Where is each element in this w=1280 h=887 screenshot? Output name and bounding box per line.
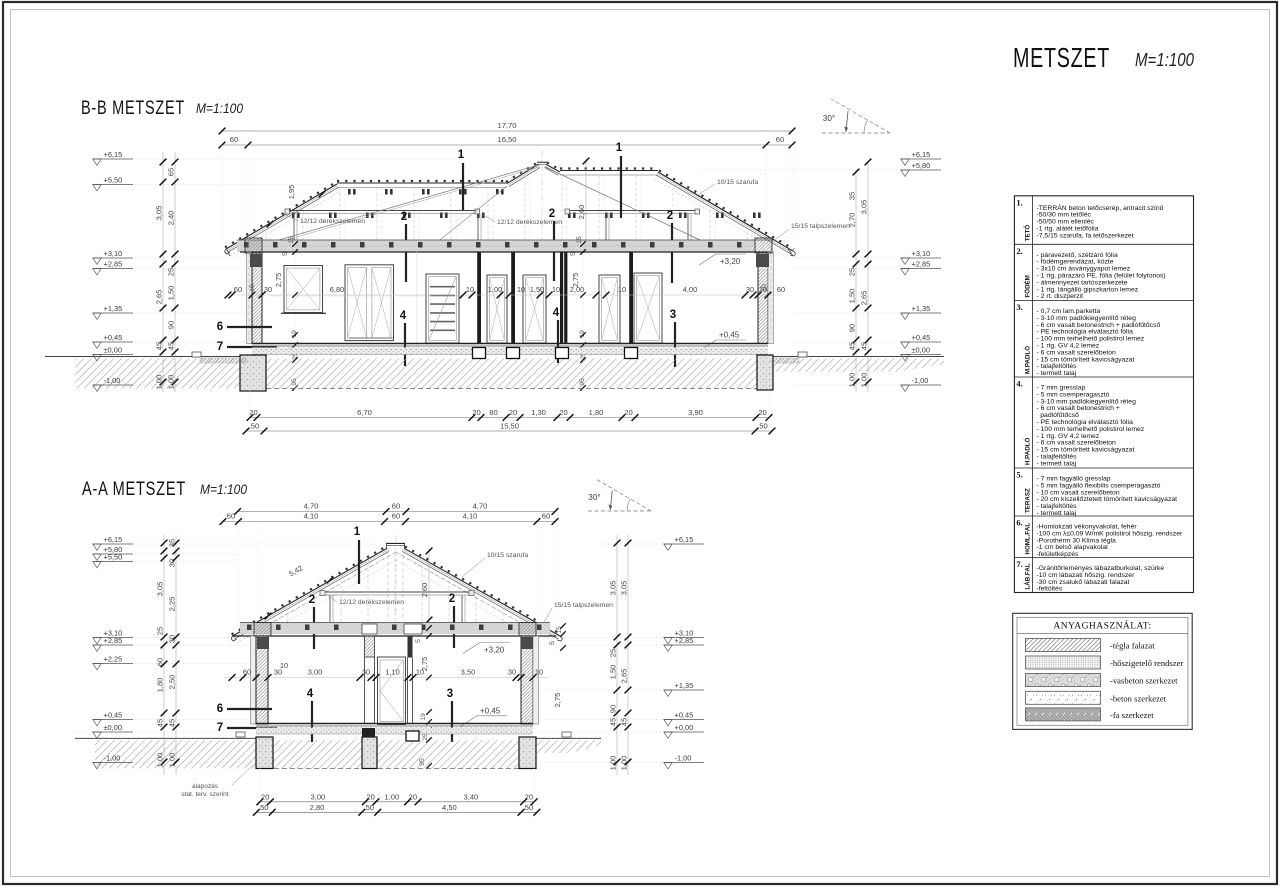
svg-text:+3,10: +3,10: [912, 249, 931, 258]
svg-text:30: 30: [168, 559, 177, 567]
svg-text:1: 1: [616, 142, 623, 154]
svg-text:60: 60: [230, 135, 238, 144]
svg-text:20: 20: [525, 792, 533, 801]
svg-text:25: 25: [848, 268, 857, 276]
svg-text:7.: 7.: [1016, 559, 1022, 569]
svg-text:6: 6: [217, 703, 223, 715]
svg-text:3,05: 3,05: [860, 200, 869, 215]
svg-text:3,05: 3,05: [609, 581, 618, 596]
svg-text:-1,00: -1,00: [104, 753, 121, 762]
svg-text:- 2 rt. diszperzit: - 2 rt. diszperzit: [1037, 293, 1084, 300]
svg-text:2: 2: [401, 211, 407, 223]
svg-text:10: 10: [535, 668, 543, 677]
svg-text:1,00: 1,00: [860, 373, 869, 388]
svg-text:60: 60: [392, 512, 400, 521]
svg-text:12/12 derékszelemen: 12/12 derékszelemen: [497, 219, 562, 226]
svg-text:5: 5: [282, 252, 289, 256]
svg-text:10: 10: [249, 284, 256, 292]
svg-text:1,00: 1,00: [155, 375, 164, 390]
svg-text:60: 60: [156, 658, 165, 666]
svg-text:1,00: 1,00: [168, 753, 177, 768]
svg-text:-7,5/15 szarufa, fa tetőszerke: -7,5/15 szarufa, fa tetőszerkezet: [1037, 232, 1134, 239]
svg-text:2,65: 2,65: [620, 669, 629, 684]
svg-text:10/15 szarufa: 10/15 szarufa: [717, 179, 758, 186]
svg-text:60: 60: [392, 502, 400, 511]
svg-text:4: 4: [307, 688, 314, 700]
svg-text:90: 90: [848, 324, 857, 332]
svg-text:30: 30: [362, 668, 370, 677]
svg-text:2,65: 2,65: [860, 291, 869, 306]
svg-text:20: 20: [472, 408, 480, 417]
svg-text:20: 20: [624, 408, 632, 417]
svg-text:M=1:100: M=1:100: [1135, 49, 1195, 70]
svg-text:1,50: 1,50: [848, 289, 857, 304]
svg-text:45: 45: [167, 342, 176, 350]
svg-text:35: 35: [168, 539, 177, 547]
svg-text:25: 25: [167, 268, 176, 276]
svg-text:4,00: 4,00: [683, 285, 697, 294]
svg-text:3,05: 3,05: [620, 581, 629, 596]
svg-text:10: 10: [517, 285, 525, 294]
svg-text:+6,15: +6,15: [104, 535, 123, 544]
svg-text:2: 2: [309, 594, 315, 606]
svg-text:5.: 5.: [1016, 470, 1022, 480]
svg-text:3,90: 3,90: [688, 408, 703, 417]
svg-text:1,50: 1,50: [609, 665, 618, 680]
svg-text:10: 10: [280, 661, 288, 670]
svg-text:M=1:100: M=1:100: [200, 482, 247, 497]
svg-text:30: 30: [168, 635, 177, 643]
svg-text:±0,00: ±0,00: [912, 345, 930, 354]
svg-text:2: 2: [449, 593, 455, 605]
svg-text:- termett talaj: - termett talaj: [1037, 370, 1077, 377]
svg-text:20: 20: [559, 408, 567, 417]
svg-text:6,70: 6,70: [357, 408, 372, 417]
svg-text:45: 45: [848, 342, 857, 350]
svg-text:20: 20: [758, 408, 766, 417]
svg-text:2,75: 2,75: [420, 657, 429, 671]
svg-text:FÖDÉM: FÖDÉM: [1023, 275, 1031, 297]
svg-text:45: 45: [609, 718, 618, 726]
svg-text:4,70: 4,70: [473, 502, 488, 511]
svg-text:B-B METSZET: B-B METSZET: [81, 98, 185, 119]
svg-text:45: 45: [860, 342, 869, 350]
svg-text:1,00: 1,00: [620, 756, 629, 771]
svg-text:+6,15: +6,15: [912, 150, 931, 159]
svg-text:-vasbeton szerkezet: -vasbeton szerkezet: [1110, 676, 1178, 686]
svg-text:+2,85: +2,85: [104, 636, 123, 645]
svg-text:+1,35: +1,35: [912, 304, 931, 313]
svg-text:30: 30: [746, 285, 754, 294]
svg-text:3: 3: [447, 688, 453, 700]
svg-text:16,50: 16,50: [497, 135, 516, 144]
svg-text:3,00: 3,00: [311, 792, 326, 801]
svg-text:20: 20: [249, 408, 257, 417]
svg-text:45: 45: [620, 718, 629, 726]
svg-text:1,00: 1,00: [167, 375, 176, 390]
svg-text:4,50: 4,50: [442, 803, 457, 812]
svg-text:30°: 30°: [588, 493, 600, 502]
svg-text:-TERRÁN beton tetőcserép, antr: -TERRÁN beton tetőcserép, antracit színű: [1037, 203, 1164, 212]
svg-text:M.PADLÓ: M.PADLÓ: [1023, 346, 1031, 374]
svg-text:TERASZ: TERASZ: [1024, 488, 1031, 513]
svg-text:50: 50: [366, 803, 374, 812]
svg-text:4,10: 4,10: [463, 512, 478, 521]
svg-text:60: 60: [243, 668, 251, 677]
svg-text:+0,45: +0,45: [719, 331, 740, 340]
svg-text:50: 50: [759, 422, 767, 431]
svg-text:30: 30: [264, 285, 272, 294]
svg-text:60: 60: [776, 135, 784, 144]
svg-text:20: 20: [261, 792, 269, 801]
svg-text:+3,20: +3,20: [484, 646, 505, 655]
svg-text:6: 6: [217, 321, 223, 333]
svg-text:+0,45: +0,45: [675, 710, 694, 719]
svg-text:12/12 derékszelemen: 12/12 derékszelemen: [339, 599, 404, 606]
svg-text:10/15 szarufa: 10/15 szarufa: [487, 552, 528, 559]
svg-text:2,50: 2,50: [168, 675, 177, 690]
svg-text:1,95: 1,95: [287, 185, 296, 199]
svg-text:25: 25: [156, 627, 165, 635]
svg-text:1,00: 1,00: [156, 753, 165, 768]
svg-text:ANYAGHASZNÁLAT:: ANYAGHASZNÁLAT:: [1053, 620, 1151, 632]
svg-text:+6,15: +6,15: [104, 150, 123, 159]
svg-text:60: 60: [542, 512, 550, 521]
svg-text:- termett talaj: - termett talaj: [1037, 460, 1077, 467]
svg-text:METSZET: METSZET: [1013, 42, 1110, 73]
svg-text:+6,15: +6,15: [675, 535, 694, 544]
svg-text:65: 65: [167, 168, 176, 176]
svg-text:- termett talaj: - termett talaj: [1037, 510, 1077, 517]
svg-text:60: 60: [777, 285, 785, 294]
svg-text:-1,00: -1,00: [104, 376, 121, 385]
svg-text:30: 30: [508, 668, 516, 677]
svg-text:+2,25: +2,25: [104, 654, 123, 663]
svg-text:45: 45: [168, 719, 177, 727]
svg-text:±0,00: ±0,00: [104, 345, 122, 354]
svg-text:50: 50: [251, 422, 259, 431]
svg-text:2,60: 2,60: [420, 583, 429, 597]
svg-text:5: 5: [570, 252, 577, 256]
svg-text:20: 20: [366, 792, 374, 801]
svg-text:+0,00: +0,00: [675, 723, 694, 732]
svg-text:1,30: 1,30: [531, 408, 546, 417]
svg-text:+1,35: +1,35: [104, 304, 123, 313]
svg-text:1,50: 1,50: [530, 285, 544, 294]
svg-text:6,80: 6,80: [330, 285, 344, 294]
svg-text:+5,80: +5,80: [912, 161, 931, 170]
svg-text:80: 80: [489, 408, 497, 417]
svg-text:15: 15: [288, 236, 295, 244]
svg-text:TETŐ: TETŐ: [1024, 225, 1031, 242]
svg-text:5: 5: [415, 639, 422, 643]
svg-text:2,60: 2,60: [577, 205, 586, 219]
svg-text:10: 10: [618, 285, 626, 294]
svg-text:+5,50: +5,50: [104, 175, 123, 184]
svg-text:-beton szerkezet: -beton szerkezet: [1110, 693, 1167, 703]
svg-text:1,80: 1,80: [156, 678, 165, 693]
svg-text:2,40: 2,40: [167, 211, 176, 226]
svg-text:50: 50: [525, 803, 533, 812]
svg-text:-feltöltés: -feltöltés: [1037, 586, 1063, 593]
svg-text:+0,45: +0,45: [480, 706, 501, 715]
svg-text:20: 20: [509, 408, 517, 417]
svg-text:2,25: 2,25: [168, 597, 177, 612]
svg-text:60: 60: [227, 512, 235, 521]
svg-text:+0,45: +0,45: [104, 710, 123, 719]
svg-text:2,75: 2,75: [571, 273, 580, 287]
svg-text:alapozás: alapozás: [192, 783, 219, 790]
svg-text:4.: 4.: [1016, 379, 1022, 389]
svg-text:3,00: 3,00: [308, 668, 322, 677]
svg-text:+1,35: +1,35: [675, 681, 694, 690]
svg-text:2,80: 2,80: [310, 803, 325, 812]
svg-text:25: 25: [609, 649, 618, 657]
svg-text:4: 4: [400, 310, 407, 322]
svg-text:1,10: 1,10: [385, 668, 399, 677]
svg-text:50: 50: [260, 803, 268, 812]
svg-text:15,50: 15,50: [500, 422, 519, 431]
svg-text:3.: 3.: [1016, 302, 1022, 312]
svg-text:3,40: 3,40: [464, 792, 479, 801]
svg-text:-1,00: -1,00: [912, 376, 929, 385]
svg-text:4: 4: [553, 307, 560, 319]
svg-text:A-A METSZET: A-A METSZET: [82, 479, 186, 500]
svg-text:45: 45: [155, 342, 164, 350]
svg-text:1: 1: [354, 526, 361, 538]
svg-text:-hőszigetelő rendszer: -hőszigetelő rendszer: [1110, 658, 1183, 668]
svg-text:3,50: 3,50: [461, 668, 475, 677]
svg-text:35: 35: [848, 192, 857, 200]
svg-text:+2,85: +2,85: [104, 259, 123, 268]
svg-text:+2,85: +2,85: [675, 636, 694, 645]
svg-text:7: 7: [217, 722, 223, 734]
svg-text:7: 7: [217, 341, 223, 353]
svg-text:M=1:100: M=1:100: [196, 101, 243, 116]
svg-text:1,00: 1,00: [848, 373, 857, 388]
svg-text:2.: 2.: [1016, 246, 1022, 256]
svg-text:90: 90: [167, 321, 176, 329]
svg-text:2,65: 2,65: [155, 290, 164, 305]
svg-text:2,75: 2,75: [553, 693, 562, 707]
svg-text:-felületképzés: -felületképzés: [1037, 551, 1080, 558]
svg-text:1,00: 1,00: [384, 792, 399, 801]
svg-text:45: 45: [156, 719, 165, 727]
svg-text:-tégla falazat: -tégla falazat: [1110, 641, 1155, 651]
svg-text:1,80: 1,80: [589, 408, 604, 417]
svg-text:1,00: 1,00: [488, 285, 502, 294]
svg-text:1: 1: [458, 149, 465, 161]
svg-text:3,05: 3,05: [156, 582, 165, 597]
svg-text:HOML.FAL: HOML.FAL: [1024, 523, 1031, 555]
svg-text:4,70: 4,70: [304, 502, 319, 511]
svg-text:17,70: 17,70: [497, 121, 516, 130]
svg-text:2: 2: [549, 208, 555, 220]
svg-text:LÁB.FAL: LÁB.FAL: [1024, 563, 1031, 589]
svg-text:2,70: 2,70: [848, 213, 857, 228]
svg-text:3: 3: [670, 309, 676, 321]
svg-text:1,50: 1,50: [167, 286, 176, 301]
svg-text:-fa szerkezet: -fa szerkezet: [1110, 710, 1154, 720]
svg-text:15/15 talpszelemen: 15/15 talpszelemen: [791, 223, 850, 230]
svg-text:5: 5: [549, 641, 556, 645]
svg-text:10: 10: [761, 284, 768, 292]
svg-text:6.: 6.: [1016, 518, 1022, 528]
svg-text:1.: 1.: [1016, 197, 1022, 207]
svg-text:90: 90: [609, 705, 618, 713]
svg-text:15/15 talpszelemen: 15/15 talpszelemen: [554, 602, 613, 609]
svg-text:10: 10: [466, 285, 474, 294]
svg-text:30°: 30°: [823, 114, 835, 123]
svg-text:12/12 derékszelemen: 12/12 derékszelemen: [300, 218, 365, 225]
svg-text:4,10: 4,10: [304, 512, 319, 521]
svg-text:2,75: 2,75: [274, 273, 283, 287]
svg-text:+3,10: +3,10: [104, 249, 123, 258]
svg-text:20: 20: [409, 792, 417, 801]
svg-text:1,00: 1,00: [609, 756, 618, 771]
svg-text:2: 2: [667, 210, 673, 222]
svg-text:+5,50: +5,50: [104, 552, 123, 561]
svg-text:±0,00: ±0,00: [104, 723, 122, 732]
svg-text:-1,00: -1,00: [675, 753, 692, 762]
svg-text:+2,85: +2,85: [912, 259, 931, 268]
svg-text:+3,20: +3,20: [720, 257, 741, 266]
svg-text:+0,45: +0,45: [912, 333, 931, 342]
svg-text:15: 15: [576, 236, 583, 244]
svg-text:3,05: 3,05: [155, 206, 164, 221]
svg-text:H.PADLÓ: H.PADLÓ: [1023, 437, 1031, 465]
svg-text:+0,45: +0,45: [104, 333, 123, 342]
svg-text:stat. terv. szerint: stat. terv. szerint: [181, 791, 228, 798]
svg-text:10: 10: [552, 285, 560, 294]
